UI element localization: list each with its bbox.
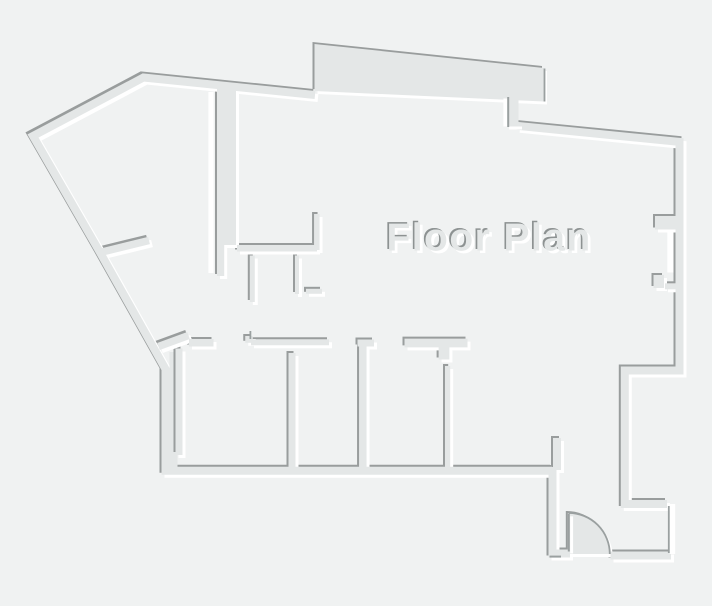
svg-text:Floor Plan: Floor Plan <box>387 217 592 260</box>
